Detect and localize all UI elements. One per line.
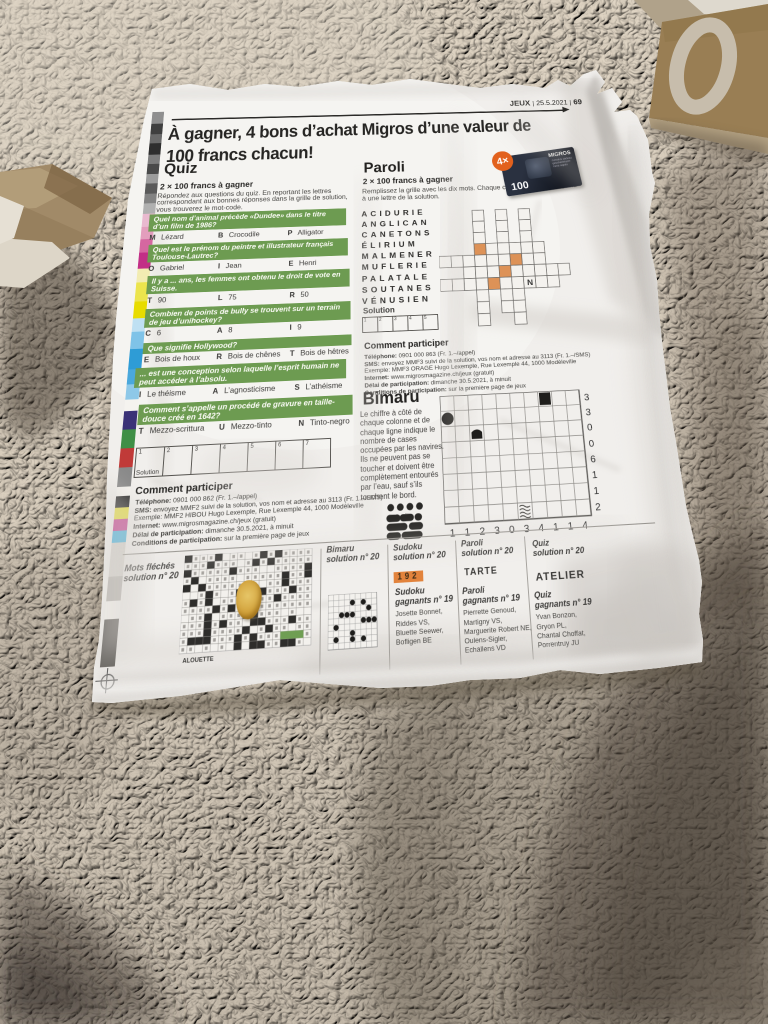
svg-text:N: N — [527, 277, 534, 287]
